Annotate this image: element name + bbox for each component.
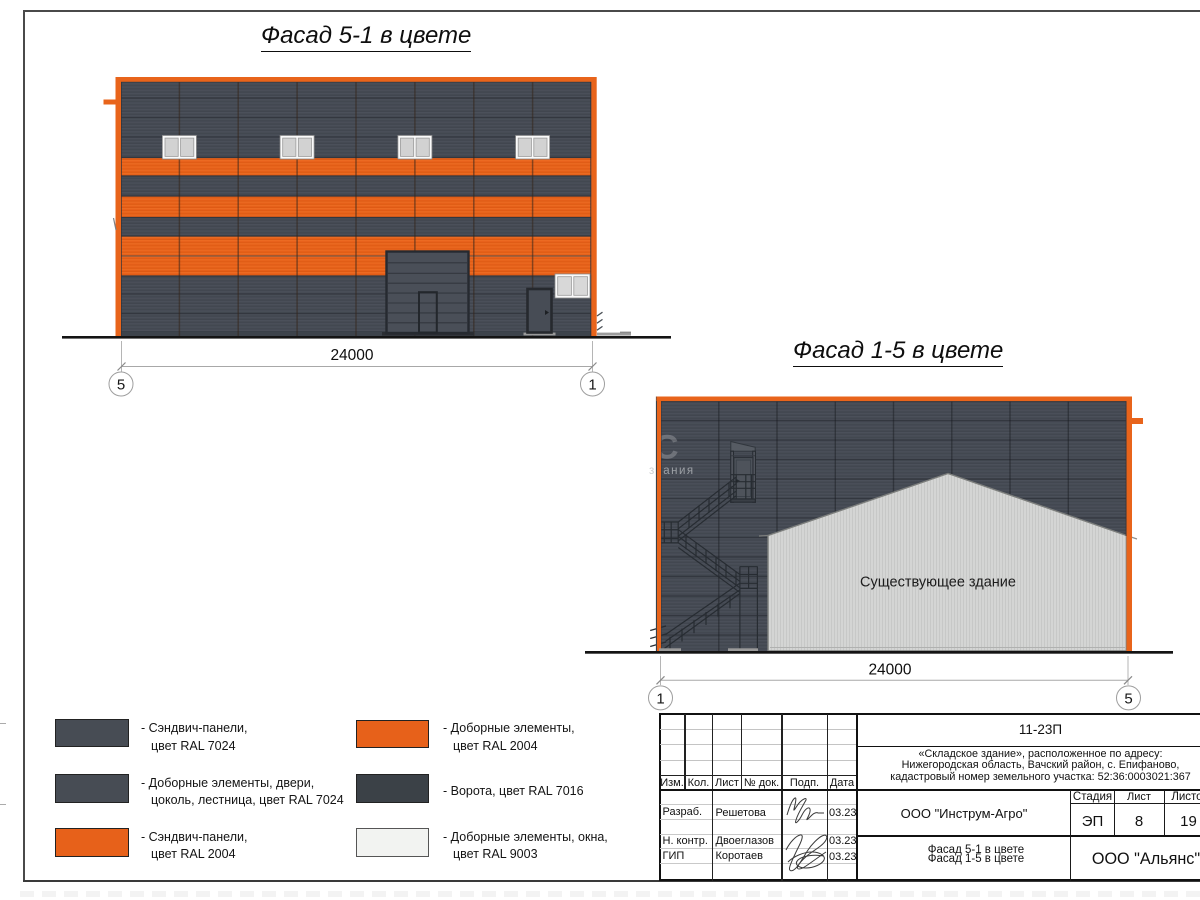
svg-text:1: 1 [656,690,664,707]
svg-text:5: 5 [117,377,125,394]
svg-text:5: 5 [1124,690,1132,707]
svg-text:Существующее здание: Существующее здание [860,575,1016,591]
svg-text:24000: 24000 [868,662,911,679]
svg-text:звания: звания [649,465,695,477]
svg-text:24000: 24000 [330,347,373,364]
